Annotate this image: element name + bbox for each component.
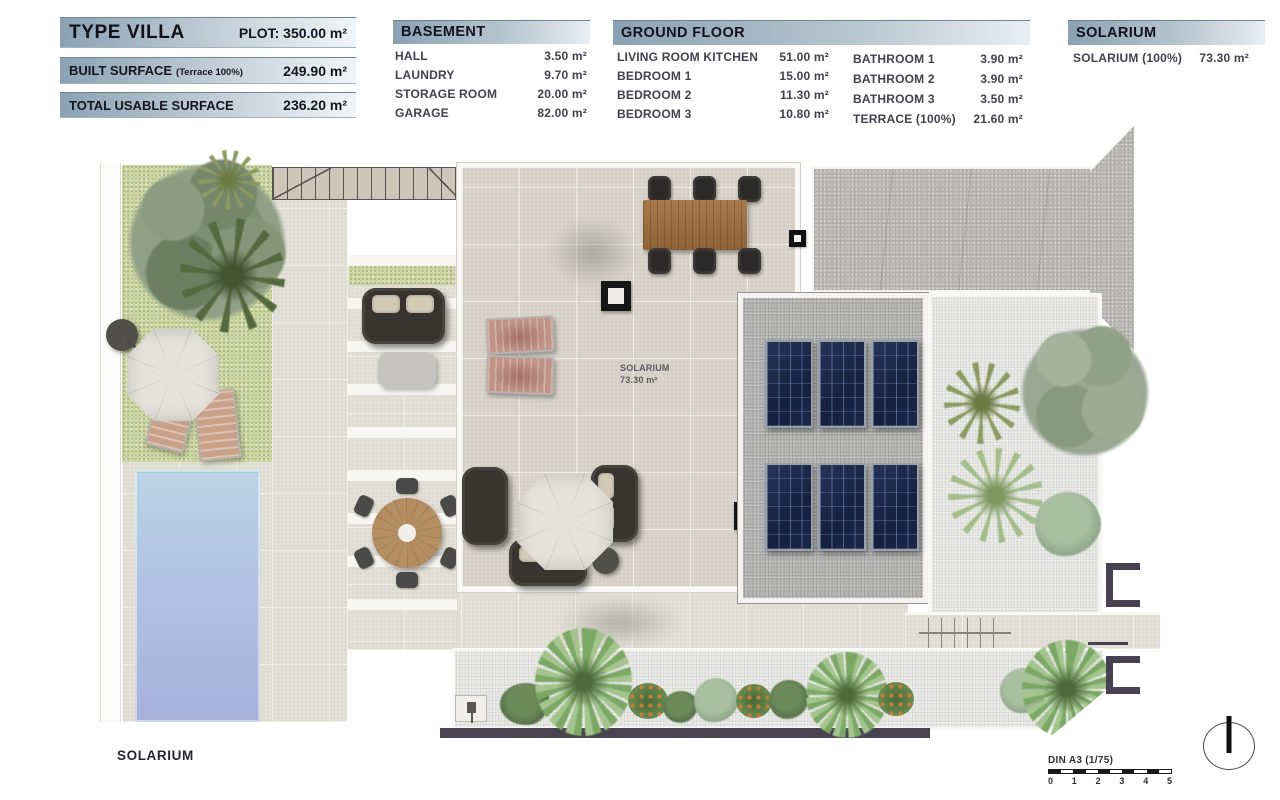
total-usable-label: TOTAL USABLE SURFACE [69,98,234,113]
entrance-gate [1106,656,1140,694]
scale-segment [1061,770,1073,773]
utility-box [455,695,487,722]
basement-header: BASEMENT [393,20,590,44]
scale-segment [1049,770,1061,773]
skylight-small [789,230,806,247]
bush [694,678,738,724]
built-surface-note: (Terrace 100%) [176,67,243,78]
table-row: LIVING ROOM KITCHEN51.00 m² [617,47,829,66]
utility-pole [471,713,473,723]
table-row: BATHROOM 13.90 m² [853,49,1023,69]
floor-caption: SOLARIUM [117,748,194,763]
type-villa-bar: TYPE VILLA PLOT: 350.00 m² [60,17,356,48]
fern-palm-tree [948,448,1043,543]
dining-chair [396,572,418,588]
staircase [272,167,460,200]
sofa-cushion [406,295,434,313]
basement-table: HALL3.50 m² LAUNDRY9.70 m² STORAGE ROOM2… [395,46,587,122]
bush [1035,492,1101,558]
terrace-chair [648,248,671,274]
solar-panel [818,463,866,551]
sun-lounger [485,355,554,395]
skylight [601,281,631,311]
terrace-dining-table [643,200,747,250]
table-row: BEDROOM 211.30 m² [617,85,829,104]
solar-panel [818,340,866,428]
compass-needle [1227,716,1232,753]
terrace-chair [738,176,761,202]
bush [769,680,809,720]
total-usable-bar: TOTAL USABLE SURFACE 236.20 m² [60,92,356,118]
scale-label: DIN A3 (1/75) [1048,755,1172,766]
ground-floor-header: GROUND FLOOR [613,20,1030,45]
stair-direction-line [919,632,1011,634]
patio-umbrella [517,474,613,570]
lounge-sofa [462,467,508,545]
solar-panel-area [738,293,928,603]
round-dining-table [372,498,442,568]
table-row: BEDROOM 115.00 m² [617,66,829,85]
driveway [812,167,1092,292]
built-surface-value: 249.90 m² [283,63,347,79]
floor-plan-sheet: TYPE VILLA PLOT: 350.00 m² BUILT SURFACE… [0,0,1280,800]
fence-line [1088,642,1128,645]
utility-meter [467,702,476,713]
fruit-shrub [736,684,772,718]
table-row: TERRACE (100%)21.60 m² [853,109,1023,129]
scale-segment [1159,770,1171,773]
fan-palm-tree [944,362,1020,444]
terrace-chair [693,248,716,274]
entrance-gate [1106,563,1140,607]
pine-tree [806,652,888,738]
walkway [905,612,1160,652]
garden-umbrella [127,329,219,421]
solarium-header: SOLARIUM [1068,20,1265,45]
terrace-chair [648,176,671,202]
scale-segment [1073,770,1085,773]
sofa-cushion [372,295,400,313]
solar-panel [765,340,813,428]
pergola-sofa [362,288,445,344]
table-row: GARAGE82.00 m² [395,103,587,122]
solar-panel [871,463,919,551]
fan-palm-tree [198,150,260,210]
terrace-chair [738,248,761,274]
scale-segment [1098,770,1110,773]
solar-panel [871,340,919,428]
north-compass-icon [1203,722,1255,770]
ground-floor-table-right: BATHROOM 13.90 m² BATHROOM 23.90 m² BATH… [853,49,1023,129]
table-row: LAUNDRY9.70 m² [395,65,587,84]
palm-tree [180,218,285,333]
villa-type-title: TYPE VILLA [69,22,185,44]
plot-area-value: PLOT: 350.00 m² [239,25,347,41]
pine-tree [535,628,632,736]
tree-shadow [545,215,640,290]
built-surface-label: BUILT SURFACE [69,63,172,78]
solarium-area-label: SOLARIUM 73.30 m² [620,363,670,386]
scale-bar [1048,769,1172,774]
table-row: BEDROOM 310.80 m² [617,104,829,123]
scale-segment [1134,770,1146,773]
coffee-table [378,352,436,388]
scale-segment [1110,770,1122,773]
swimming-pool [135,470,260,722]
table-row: BATHROOM 23.90 m² [853,69,1023,89]
stair-diagonal [429,168,459,199]
solarium-table: SOLARIUM (100%)73.30 m² [1073,48,1249,67]
table-row: STORAGE ROOM20.00 m² [395,84,587,103]
built-surface-bar: BUILT SURFACE (Terrace 100%) 249.90 m² [60,57,356,84]
olive-tree [1015,310,1155,475]
solar-panel [765,463,813,551]
scale-ticks: 0 1 2 3 4 5 [1048,776,1172,786]
ground-floor-table-left: LIVING ROOM KITCHEN51.00 m² BEDROOM 115.… [617,47,829,123]
table-row: BATHROOM 33.50 m² [853,89,1023,109]
scale-segment [1122,770,1134,773]
dining-chair [396,478,418,494]
fruit-shrub [878,682,914,716]
scale-segment [1147,770,1159,773]
scale-bar-block: DIN A3 (1/75) 0 1 2 3 4 5 [1048,755,1172,786]
table-row: SOLARIUM (100%)73.30 m² [1073,48,1249,67]
table-row: HALL3.50 m² [395,46,587,65]
fruit-shrub [628,683,668,719]
sun-lounger [485,315,555,355]
terrace-chair [693,176,716,202]
total-usable-value: 236.20 m² [283,97,347,113]
scale-segment [1086,770,1098,773]
